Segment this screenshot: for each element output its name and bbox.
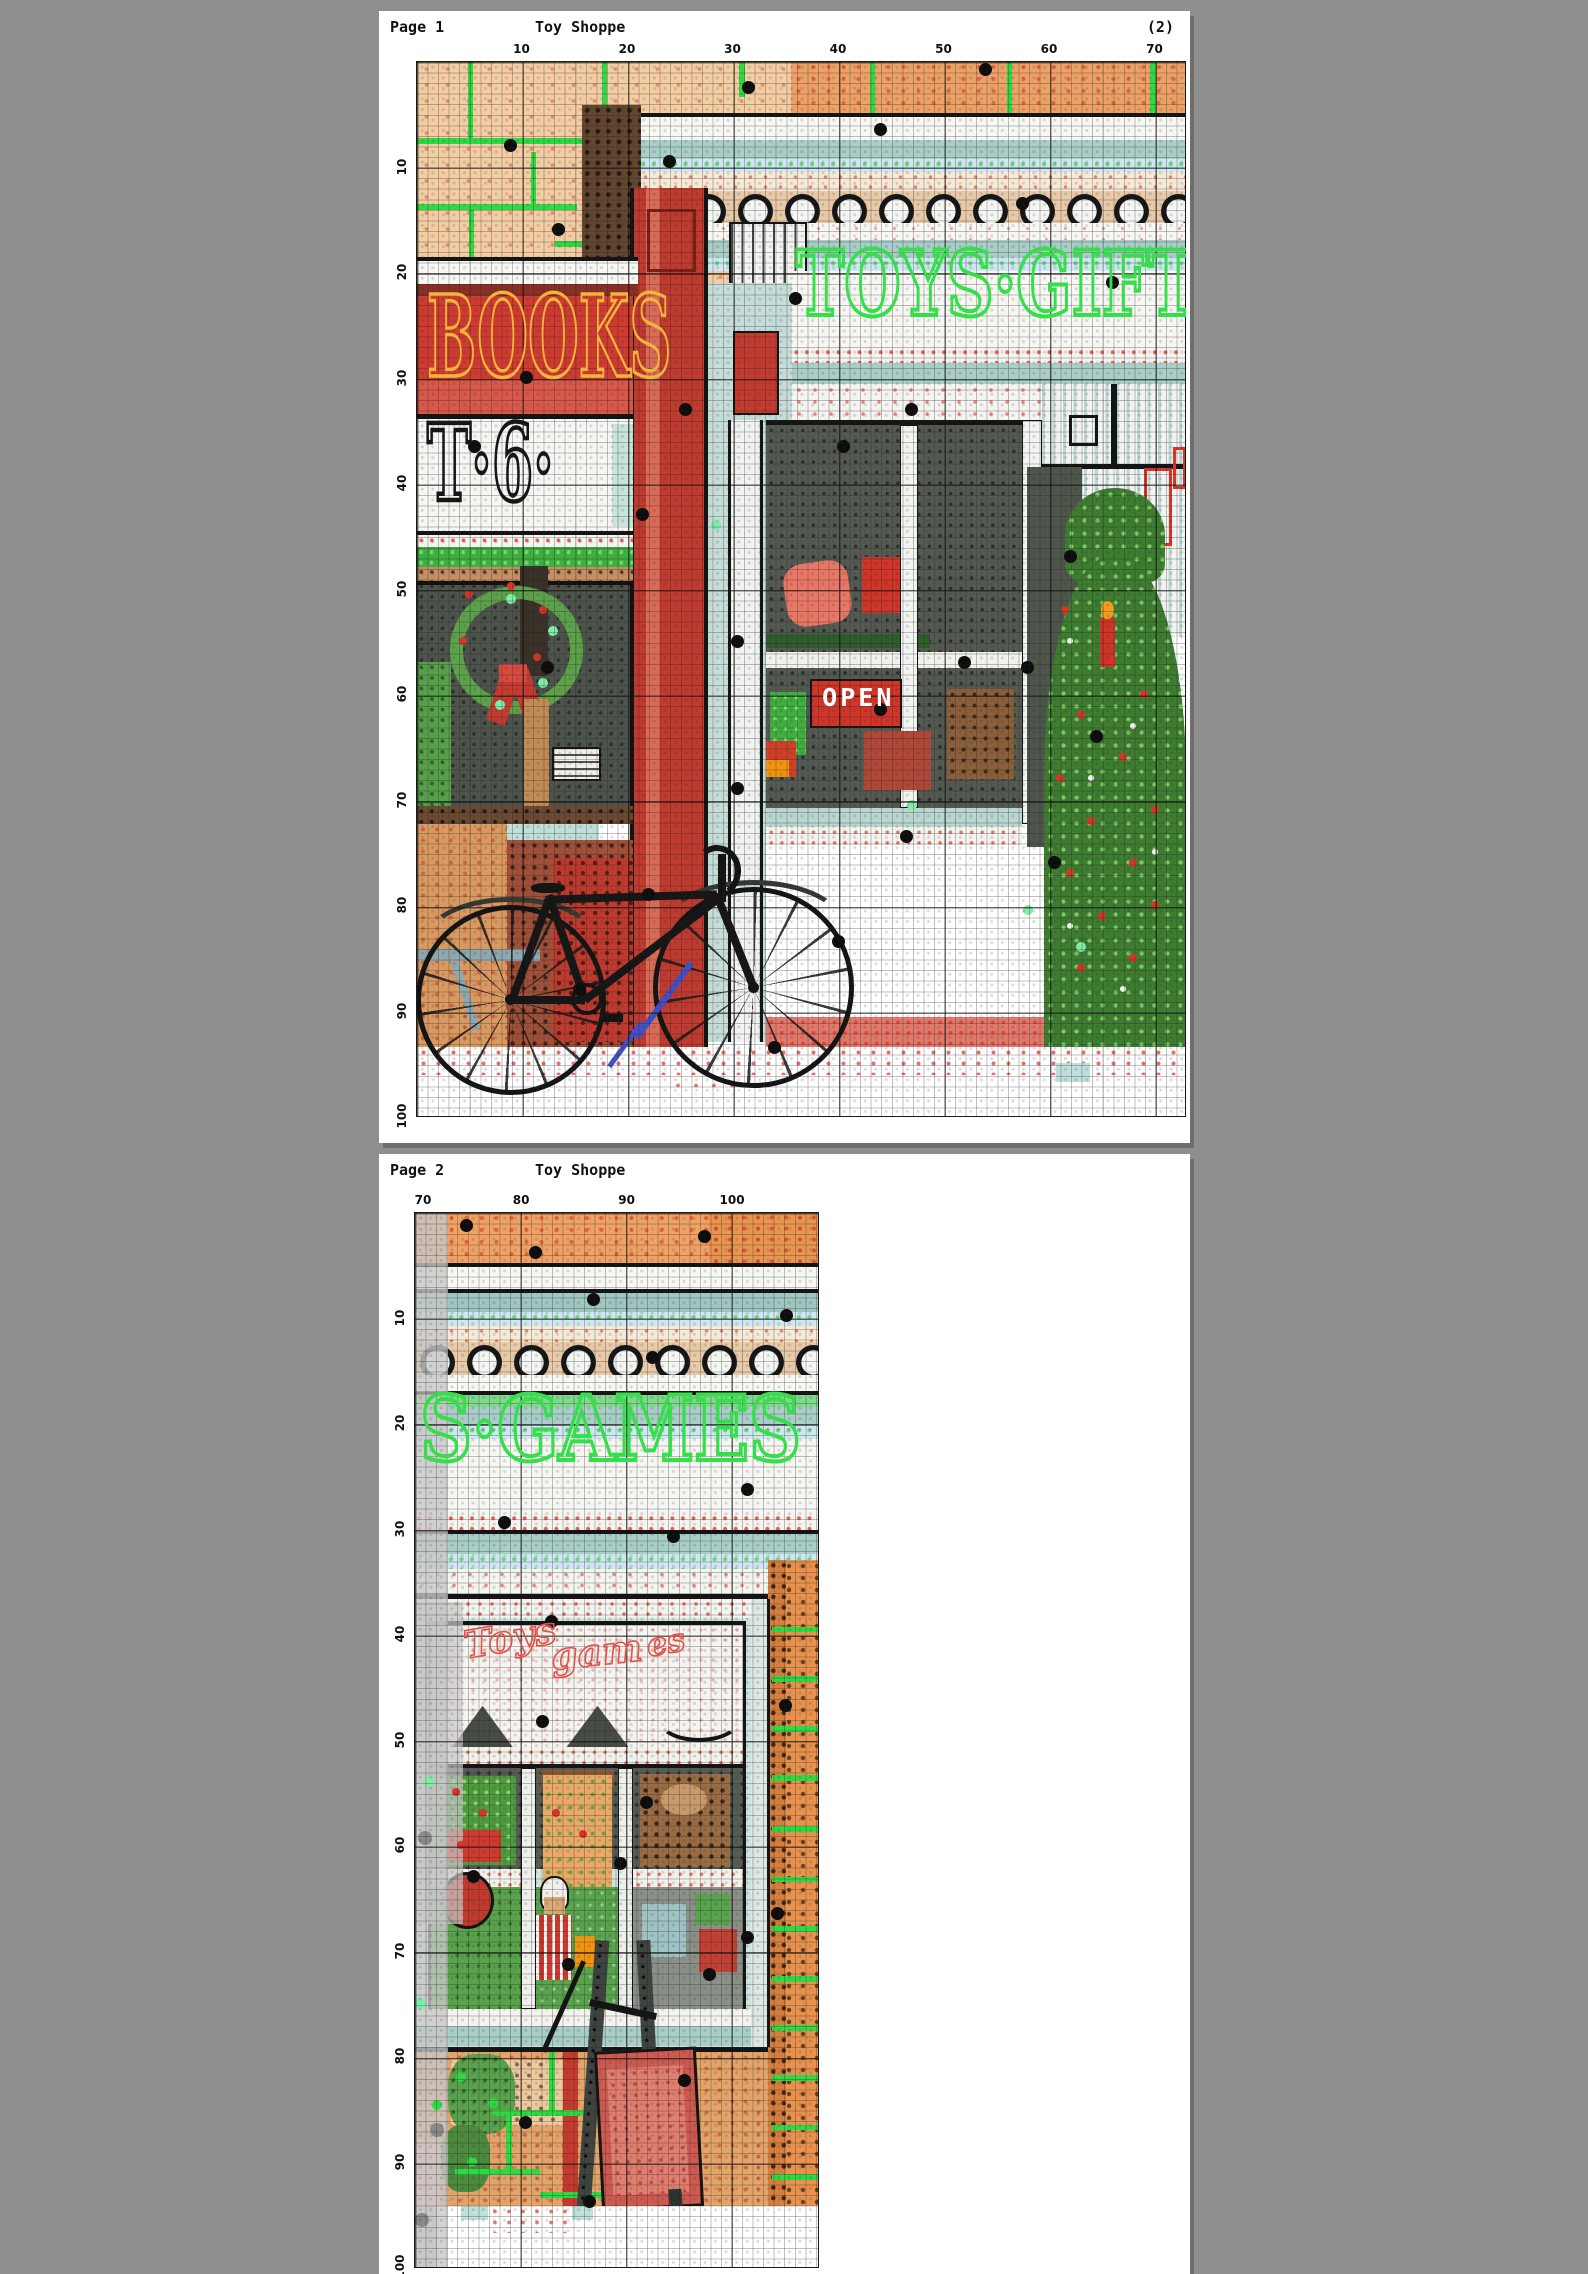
garland-strand	[468, 61, 474, 141]
corner-garland	[772, 2025, 819, 2031]
window-top-dots	[414, 1599, 751, 1618]
toy-wagon	[864, 731, 930, 790]
ruler-label-left: 60	[395, 686, 409, 703]
ruler-label-top: 60	[1041, 42, 1058, 56]
green-knot	[432, 2100, 442, 2110]
berry-knot	[1151, 901, 1159, 909]
window-script: es	[644, 1624, 687, 1662]
french-knot	[646, 1351, 659, 1364]
garland-strand	[506, 2115, 512, 2174]
french-knot	[1048, 856, 1061, 869]
mint-knot	[495, 700, 505, 710]
corner-garland	[772, 1976, 819, 1982]
berry-knot	[1061, 606, 1069, 614]
ruler-label-top: 50	[935, 42, 952, 56]
door-red-bracket	[1173, 447, 1186, 489]
ruler-label-left: 40	[395, 475, 409, 492]
toy-poinsettia-gold	[766, 760, 789, 777]
cornice-holly-band	[414, 1312, 819, 1327]
windowsill	[416, 806, 633, 824]
french-knot	[837, 440, 850, 453]
ruler-label-left: 20	[393, 1415, 407, 1432]
garland-strand	[1007, 61, 1012, 116]
transom-box	[733, 331, 779, 415]
window-shelf2	[633, 1869, 743, 1887]
garland-strand	[455, 2169, 539, 2175]
cornice-teal-band	[638, 140, 1186, 159]
chart-grid: TOYS·GIFTBOOKST·6·OPEN	[416, 61, 1186, 1117]
french-knot	[905, 403, 918, 416]
corner-garland	[772, 1775, 819, 1781]
corner-garland	[772, 1676, 819, 1682]
berry-knot	[479, 1809, 487, 1817]
berry-knot	[465, 590, 473, 598]
door-jamb	[524, 699, 549, 806]
ruler-label-left: 60	[393, 1837, 407, 1854]
toy-teddy	[947, 689, 1015, 780]
sled-body-inner	[607, 2065, 689, 2195]
window-mullion	[618, 1768, 634, 2009]
ruler-label-left: 50	[395, 580, 409, 597]
ruler-label-left: 30	[393, 1520, 407, 1537]
hub-knot	[748, 982, 759, 993]
french-knot	[958, 656, 971, 669]
sign-s-games: S·GAMES	[420, 1384, 801, 1474]
ruler-label-top: 30	[724, 42, 741, 56]
holly-band	[414, 1554, 819, 1569]
right-wall-hearts	[768, 1560, 786, 2209]
corner-garland	[772, 1926, 819, 1932]
green-knot	[467, 2157, 477, 2167]
window-shelf	[431, 1747, 743, 1764]
ruler-label-top: 70	[415, 1193, 432, 1207]
mint-knot	[415, 1998, 426, 2009]
drainpipe-line	[767, 1599, 770, 2047]
dot-band	[416, 535, 633, 547]
awning-scallops	[638, 191, 1186, 224]
corner-garland	[772, 1726, 819, 1732]
ruler-label-left: 20	[395, 264, 409, 281]
page-1: Page 1 Toy Shoppe (2) TOYS·GIFTBOOKST·6·…	[379, 11, 1190, 1143]
bush	[441, 2125, 490, 2193]
mint-knot	[506, 594, 516, 604]
french-knot	[874, 123, 887, 136]
corner-garland	[772, 2075, 819, 2081]
window-mullion	[521, 1768, 537, 2009]
boy-face	[544, 1897, 565, 1914]
document-viewport: Page 1 Toy Shoppe (2) TOYS·GIFTBOOKST·6·…	[0, 0, 1588, 2274]
garland-band	[416, 547, 633, 567]
page-count: (2)	[1147, 18, 1174, 36]
berry-knot	[1140, 690, 1148, 698]
ruler-label-top: 20	[619, 42, 636, 56]
berry-knot	[1056, 774, 1064, 782]
ruler-label-left: 10	[393, 1309, 407, 1326]
page-2: Page 2 Toy Shoppe S·GAMESToysgames 70809…	[379, 1154, 1190, 2274]
garland-strand	[549, 2052, 555, 2116]
ruler-label-left: 100	[393, 2254, 407, 2274]
corner-garland	[772, 2174, 819, 2180]
dot-garland-row	[791, 347, 1186, 363]
ruler-label-left: 70	[393, 1942, 407, 1959]
page-header: Page 1 Toy Shoppe (2)	[379, 18, 1190, 36]
page-number: Page 2	[390, 1161, 444, 1179]
chart-grid: S·GAMESToysgames	[414, 1212, 819, 2268]
french-knot	[640, 1796, 653, 1809]
french-knot	[900, 830, 913, 843]
window-greenery	[416, 662, 451, 805]
french-knot	[583, 2195, 596, 2208]
corner-garland	[772, 1826, 819, 1832]
french-knot	[498, 1516, 511, 1529]
shopfront-sill-white	[766, 827, 1021, 845]
open-sign-text: OPEN	[822, 685, 894, 710]
white-dot-band	[414, 1569, 819, 1594]
french-knot	[1064, 550, 1077, 563]
french-knot	[679, 403, 692, 416]
drainpipe	[751, 1599, 769, 2047]
mint-knot	[548, 626, 558, 636]
bicycle-stem	[718, 854, 726, 901]
french-knot	[663, 155, 676, 168]
french-knot	[529, 1246, 542, 1259]
door-bay-box	[1069, 415, 1097, 446]
french-knot	[642, 888, 655, 901]
cornice-teal-band	[414, 1293, 819, 1312]
gift-box-red	[699, 1929, 737, 1971]
window-sign	[552, 747, 601, 781]
page-header: Page 2 Toy Shoppe	[379, 1161, 1190, 1179]
ruler-label-top: 90	[618, 1193, 635, 1207]
ruler-label-left: 50	[393, 1731, 407, 1748]
sidewalk-teal-blocks	[1056, 1063, 1090, 1082]
french-knot	[741, 1483, 754, 1496]
garland-strand	[1150, 61, 1155, 116]
under-awning-band	[414, 1326, 819, 1342]
wreath-bow-knot	[499, 664, 526, 682]
window-script: gam	[549, 1628, 644, 1675]
bicycle-pedal	[602, 1014, 623, 1022]
window-shelf	[766, 652, 1021, 668]
ruler-label-left: 90	[393, 2153, 407, 2170]
mint-knot	[1023, 905, 1033, 915]
books-window-frame	[630, 581, 634, 806]
garland-strand	[870, 61, 875, 116]
sign-books: BOOKS	[427, 282, 671, 394]
ruler-label-top: 80	[513, 1193, 530, 1207]
overlap-shade	[414, 1602, 463, 1924]
sill-teal-band	[414, 2026, 751, 2046]
ruler-label-left: 80	[395, 897, 409, 914]
french-knot	[742, 81, 755, 94]
corner-garland	[772, 2125, 819, 2131]
gift-box-green	[695, 1894, 731, 1926]
cornice-white-band	[414, 1267, 819, 1289]
french-knot	[731, 635, 744, 648]
brick-top-dark	[709, 1212, 819, 1263]
curtain-swag	[657, 1695, 741, 1741]
garland-strand	[416, 204, 577, 209]
corner-garland	[772, 1877, 819, 1883]
ruler-label-top: 100	[720, 1193, 745, 1207]
cornice-white-band	[638, 117, 1186, 139]
ruler-label-left: 90	[395, 1002, 409, 1019]
french-knot	[1016, 197, 1029, 210]
sign-t6: T·6·	[427, 410, 554, 516]
berry-knot	[1151, 806, 1159, 814]
french-knot	[562, 1958, 575, 1971]
french-knot	[587, 1293, 600, 1306]
t6-teal-corner	[612, 424, 633, 526]
ruler-label-left: 10	[395, 158, 409, 175]
ruler-label-left: 40	[393, 1626, 407, 1643]
awning-scallops	[414, 1342, 819, 1375]
sidewalk-dots	[488, 2206, 572, 2233]
cornice-holly-band	[638, 159, 1186, 173]
light-knot	[1152, 849, 1158, 855]
french-knot	[698, 1230, 711, 1243]
sill-white-band	[414, 2009, 751, 2027]
gray-knot	[430, 2123, 444, 2137]
gray-knot	[415, 2213, 429, 2227]
ruler-label-top: 10	[513, 42, 530, 56]
ruler-label-left: 80	[393, 2048, 407, 2065]
ruler-label-top: 40	[830, 42, 847, 56]
garland-strand	[531, 152, 536, 207]
teal-band	[414, 1534, 819, 1554]
berry-knot	[539, 606, 547, 614]
mint-knot	[907, 800, 917, 810]
toy-rocking-horse	[781, 558, 855, 630]
sign-toys-gift: TOYS·GIFT	[796, 239, 1186, 329]
corner-garland	[772, 1627, 819, 1633]
berry-knot	[1077, 964, 1085, 972]
french-knot	[1090, 730, 1103, 743]
pattern-title: Toy Shoppe	[535, 18, 625, 36]
french-knot	[780, 1309, 793, 1322]
chimney-panel	[647, 209, 696, 272]
french-knot	[573, 983, 586, 996]
mint-knot	[711, 520, 721, 530]
berry-knot	[1098, 912, 1106, 920]
dot-garland-row	[414, 1513, 819, 1530]
french-knot	[678, 2074, 691, 2087]
berry-knot	[1077, 711, 1085, 719]
french-knot	[467, 1870, 480, 1883]
shopfront-sill-teal	[766, 808, 1021, 827]
mint-knot	[1076, 942, 1086, 952]
base-red-strip	[563, 2052, 578, 2210]
ruler-label-top: 70	[1146, 42, 1163, 56]
under-awning-band	[638, 172, 1186, 190]
ruler-label-left: 100	[395, 1103, 409, 1128]
gray-knot	[418, 1831, 432, 1845]
page-number: Page 1	[390, 18, 444, 36]
bicycle-seat	[531, 883, 565, 894]
pattern-title: Toy Shoppe	[535, 1161, 625, 1179]
ruler-label-left: 70	[395, 791, 409, 808]
french-knot	[832, 935, 845, 948]
ruler-label-left: 30	[395, 369, 409, 386]
berry-knot	[1087, 817, 1095, 825]
teal-band	[791, 363, 1186, 384]
door-bay-line	[1111, 384, 1116, 464]
